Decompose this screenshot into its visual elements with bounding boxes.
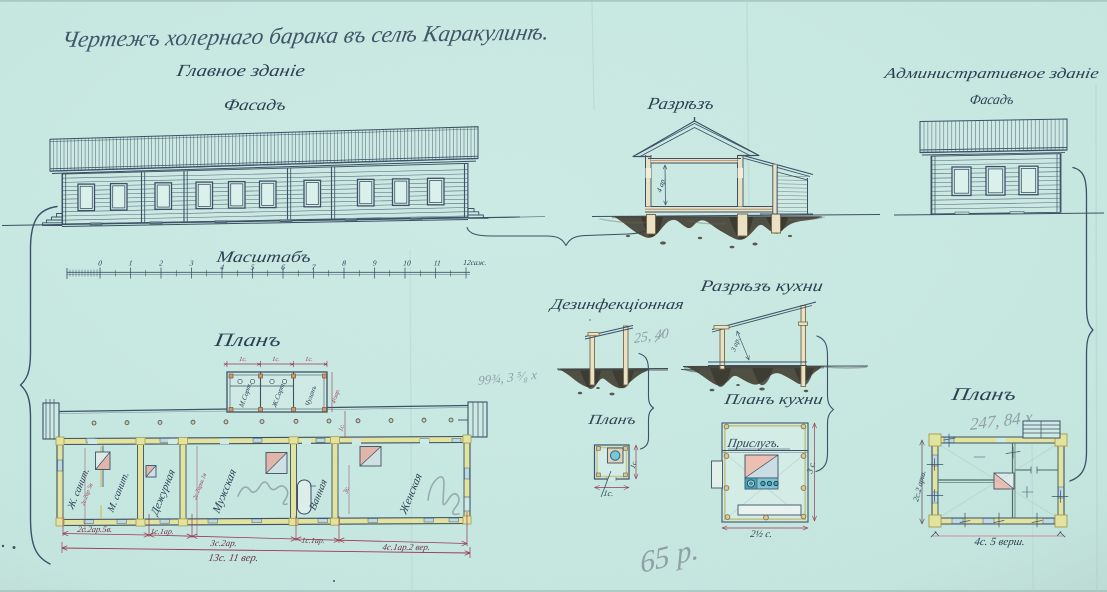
svg-text:3с.2ар.: 3с.2ар. <box>209 538 238 548</box>
svg-text:10: 10 <box>403 259 412 268</box>
svg-text:1с.: 1с. <box>239 356 248 363</box>
svg-text:11: 11 <box>433 259 441 268</box>
svg-text:Планъ: Планъ <box>212 330 283 351</box>
svg-text:1с.1ар.: 1с.1ар. <box>301 536 326 545</box>
svg-text:4с. 5 верш.: 4с. 5 верш. <box>973 536 1025 548</box>
svg-text:13с. 11 вер.: 13с. 11 вер. <box>207 553 259 564</box>
svg-text:1с.: 1с. <box>272 356 281 363</box>
svg-text:Прислугъ.: Прислугъ. <box>725 436 781 450</box>
svg-text:Дезинфекціонная: Дезинфекціонная <box>547 297 685 313</box>
svg-text:Административное зданіе: Административное зданіе <box>882 66 1100 82</box>
svg-text:1с.: 1с. <box>603 488 615 498</box>
svg-text:12саж.: 12саж. <box>463 258 487 267</box>
svg-text:Планъ: Планъ <box>949 384 1018 404</box>
svg-text:2с.2ар.5в.: 2с.2ар.5в. <box>77 524 114 534</box>
svg-text:1с.: 1с. <box>305 356 314 363</box>
svg-text:Фасадъ: Фасадъ <box>222 97 287 114</box>
svg-text:Главное зданіе: Главное зданіе <box>174 61 307 80</box>
svg-text:2½ с.: 2½ с. <box>750 529 773 540</box>
svg-text:Масштабъ: Масштабъ <box>214 249 312 266</box>
svg-text:4с.1ар.2 вер.: 4с.1ар.2 вер. <box>382 542 432 552</box>
svg-text:Разрѣзъ кухни: Разрѣзъ кухни <box>698 278 824 295</box>
svg-text:Фасадъ: Фасадъ <box>968 92 1015 108</box>
svg-text:1с.1ар.: 1с.1ар. <box>150 527 175 536</box>
svg-text:Планъ: Планъ <box>586 412 637 428</box>
svg-text:Планъ кухни: Планъ кухни <box>722 392 825 408</box>
svg-text:Разрѣзъ: Разрѣзъ <box>645 94 716 113</box>
